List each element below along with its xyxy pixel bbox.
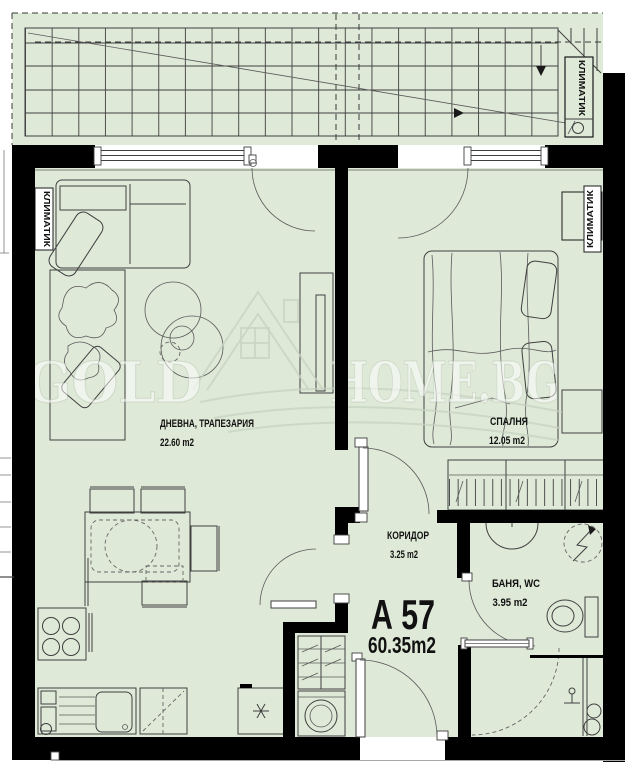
apartment-area: 60.35m2 xyxy=(368,632,436,658)
watermark-home: HOME.BG xyxy=(330,350,560,416)
watermark-gold: GOLD xyxy=(26,350,202,416)
terrace-ac-unit: КЛИМАТИК xyxy=(565,57,593,137)
terrace: КЛИМАТИК xyxy=(12,13,603,145)
living-room-area: 22.60 m2 xyxy=(160,437,194,449)
bedroom-area: 12.05 m2 xyxy=(489,435,525,447)
apartment-floor xyxy=(35,168,603,737)
corridor-name: КОРИДОР xyxy=(387,530,429,542)
terrace-ac-label: КЛИМАТИК xyxy=(577,60,587,117)
floor-plan: КЛИМАТИК xyxy=(0,0,625,762)
bathroom-area: 3.95 m2 xyxy=(493,597,528,609)
corridor-area: 3.25 m2 xyxy=(390,549,418,561)
living-ac-label: КЛИМАТИК xyxy=(42,191,52,248)
bedroom-window xyxy=(464,147,548,165)
bedroom-ac-box: КЛИМАТИК xyxy=(584,186,601,252)
shower-sliding-door xyxy=(461,638,533,649)
bedroom-ac-label: КЛИМАТИК xyxy=(585,189,595,248)
bathroom-name: БАНЯ, WC xyxy=(492,578,540,590)
living-room-name: ДНЕВНА, ТРАПЕЗАРИЯ xyxy=(160,418,254,430)
pergola-grid xyxy=(25,28,601,136)
apartment-id: А 57 xyxy=(371,591,435,638)
living-ac-unit: КЛИМАТИК xyxy=(35,188,53,250)
living-window xyxy=(94,147,257,167)
bedroom-name: СПАЛНЯ xyxy=(490,416,528,428)
